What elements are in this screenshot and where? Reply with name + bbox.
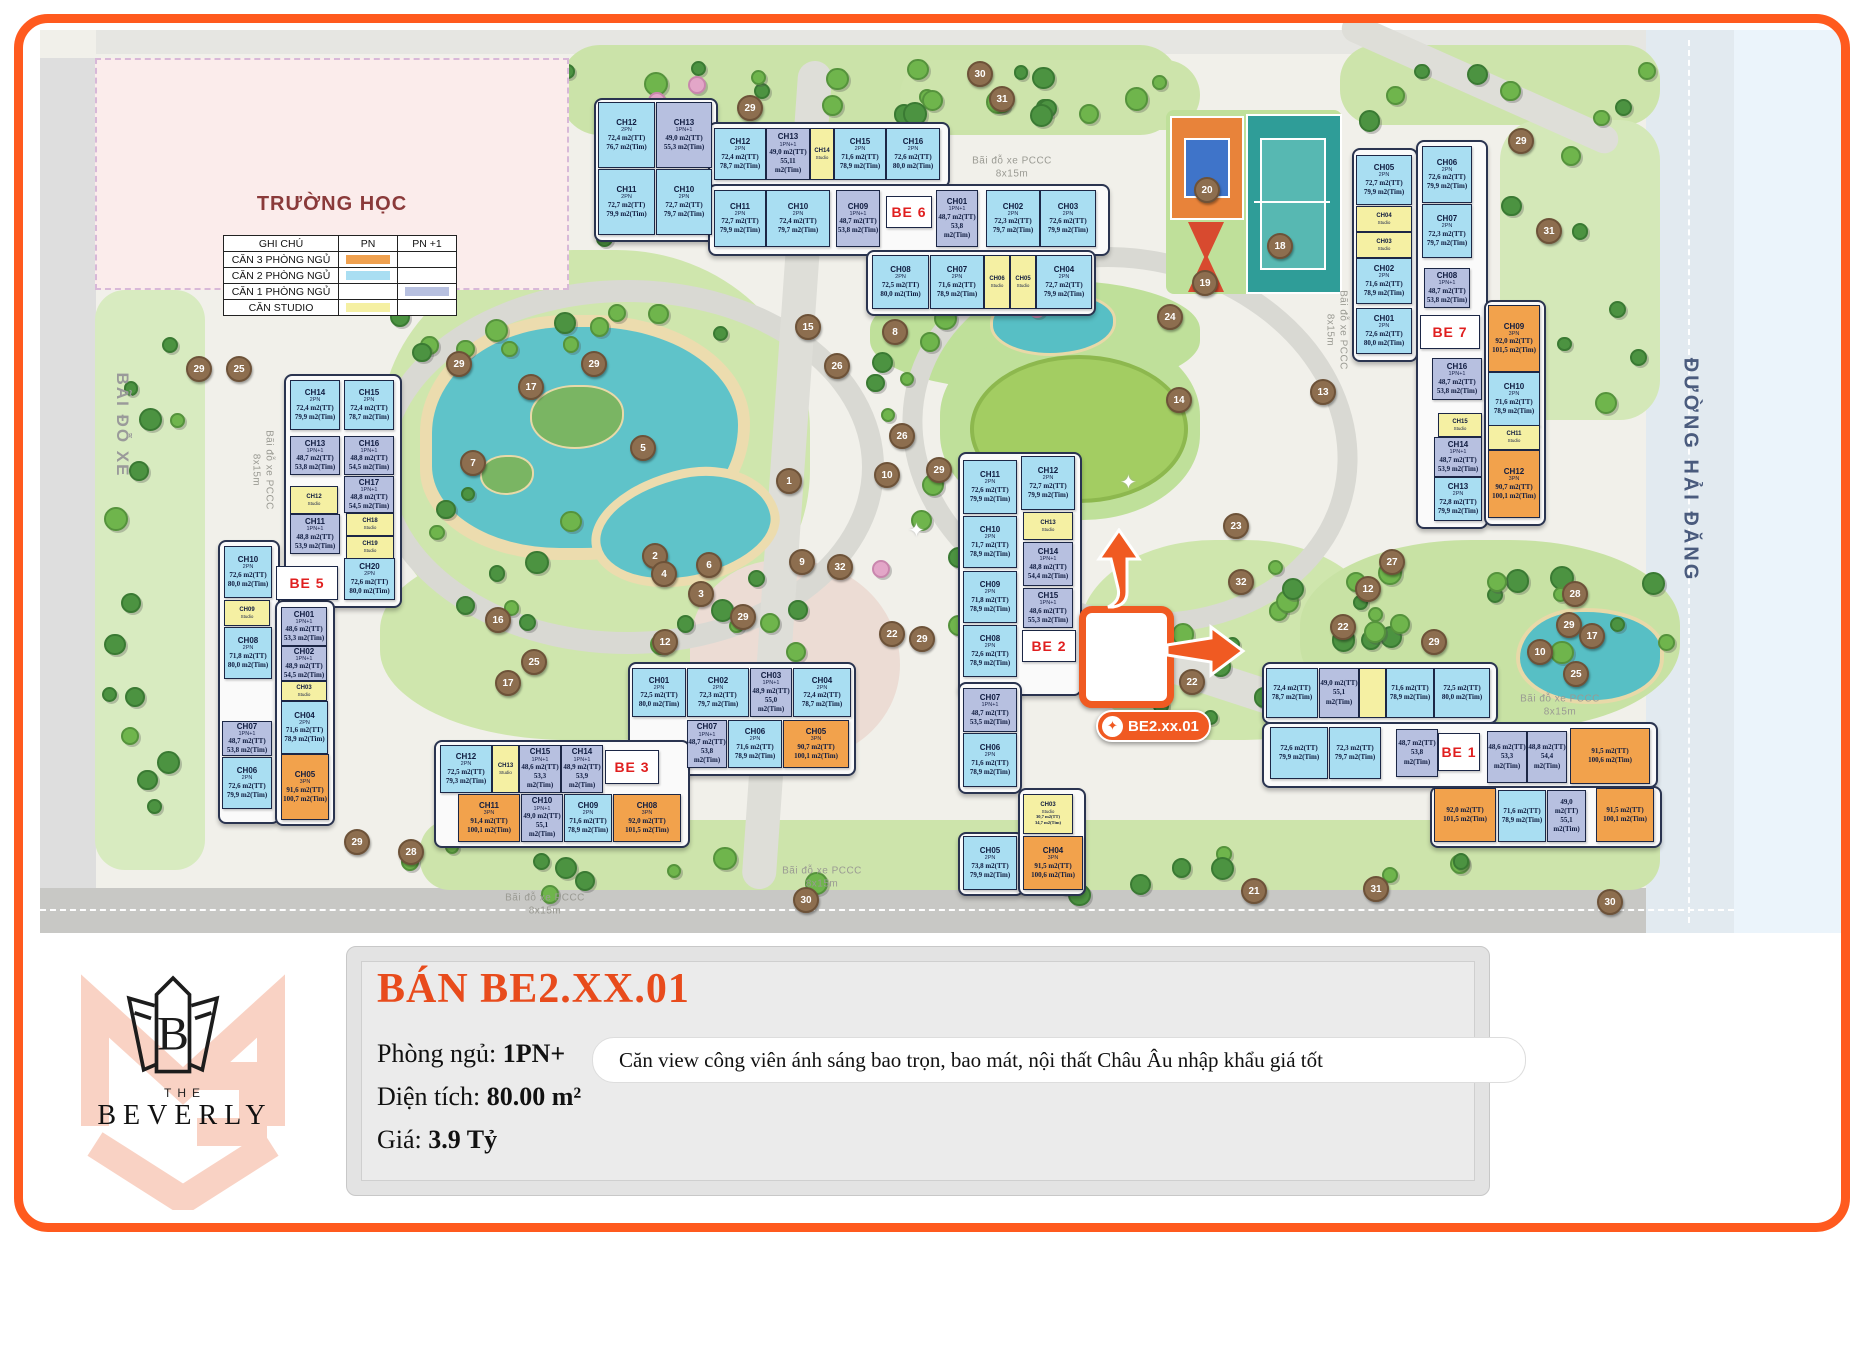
tree-icon — [429, 525, 445, 541]
tree-icon — [677, 615, 695, 633]
unit-cell[interactable]: CH042PN71,6 m2(TT)78,9 m2(Tim) — [281, 701, 328, 754]
unit-cell[interactable]: CH062PN72,6 m2(TT)79,9 m2(Tim) — [222, 757, 272, 809]
unit-cell[interactable]: CH031PN+148,9 m2(TT)55,0 m2(Tim) — [750, 668, 792, 717]
map-marker: 5 — [630, 435, 656, 461]
parking-label: Bãi đỗ xe PCCC 8x15m — [505, 893, 585, 918]
map-marker: 31 — [1536, 218, 1562, 244]
map-marker: 10 — [874, 462, 900, 488]
map-marker: 28 — [398, 839, 424, 865]
map-marker: 13 — [1310, 379, 1336, 405]
logo-letter: B — [157, 1009, 189, 1061]
unit-cell[interactable]: CH032PN72,6 m2(TT)79,9 m2(Tim) — [1040, 190, 1096, 247]
unit-cell[interactable]: CH092PN71,8 m2(TT)78,9 m2(Tim) — [963, 571, 1017, 623]
unit-cell[interactable]: CH18Studio — [346, 513, 394, 536]
unit-cell[interactable]: CH05Studio — [1010, 255, 1036, 309]
tree-icon — [1390, 614, 1409, 633]
tree-icon — [1386, 86, 1404, 104]
area-value: 80.00 m² — [487, 1082, 581, 1111]
unit-cell[interactable]: 49,0 m2(TT)55,1 m2(Tim) — [1547, 790, 1586, 842]
unit-cell[interactable]: 72,6 m2(TT)79,9 m2(Tim) — [1270, 727, 1328, 779]
brand-logo: B THE BEVERLY — [55, 948, 315, 1210]
tree-icon — [1414, 64, 1430, 80]
unit-cell[interactable]: CH082PN72,6 m2(TT)78,9 m2(Tim) — [963, 625, 1017, 677]
unit-cell[interactable]: CH053PN90,7 m2(TT)100,1 m2(Tim) — [783, 720, 849, 768]
unit-cell[interactable]: CH11Studio — [1488, 425, 1540, 450]
map-marker: 15 — [795, 314, 821, 340]
logo-crest-icon: B — [118, 974, 228, 1094]
unit-cell[interactable]: CH012PN72,6 m2(TT)80,0 m2(Tim) — [1356, 308, 1412, 354]
unit-cell[interactable]: CH141PN+148,9 m2(TT)53,9 m2(Tim) — [561, 745, 603, 793]
blossom-tree-icon — [688, 76, 706, 94]
tree-icon — [1368, 607, 1383, 622]
tree-icon — [748, 570, 765, 587]
arrow-up-icon — [1096, 528, 1142, 610]
court-net-line — [1254, 201, 1330, 203]
legend-row-label: CĂN 2 PHÒNG NGỦ — [224, 268, 339, 284]
map-marker: 32 — [827, 554, 853, 580]
unit-cell[interactable]: CH152PN72,4 m2(TT)78,7 m2(Tim) — [344, 380, 394, 430]
map-marker: 18 — [1267, 233, 1293, 259]
legend-header: GHI CHÚ — [224, 236, 339, 252]
unit-cell[interactable]: CH062PN72,6 m2(TT)79,9 m2(Tim) — [1422, 146, 1472, 203]
unit-cell[interactable]: CH122PN72,4 m2(TT)78,7 m2(Tim) — [714, 128, 766, 180]
tree-icon — [866, 374, 884, 392]
tree-icon — [920, 332, 940, 352]
tree-icon — [1030, 104, 1053, 127]
unit-cell[interactable]: CH141PN+148,8 m2(TT)54,4 m2(Tim) — [1023, 542, 1073, 586]
unit-cell[interactable]: CH022PN72,3 m2(TT)79,7 m2(Tim) — [986, 190, 1040, 247]
legend-swatch — [398, 300, 457, 316]
unit-cell[interactable]: CH113PN91,4 m2(TT)100,1 m2(Tim) — [458, 794, 520, 842]
map-marker: 1 — [776, 468, 802, 494]
tree-icon — [1550, 641, 1574, 665]
school-label: TRƯỜNG HỌC — [257, 193, 407, 216]
map-marker: 10 — [1527, 639, 1553, 665]
tree-icon — [881, 408, 895, 422]
unit-cell[interactable]: CH202PN72,6 m2(TT)80,0 m2(Tim) — [344, 558, 395, 600]
unit-cell[interactable]: CH162PN72,6 m2(TT)80,0 m2(Tim) — [886, 128, 940, 180]
unit-cell[interactable]: CH072PN72,3 m2(TT)79,7 m2(Tim) — [1422, 204, 1472, 258]
tree-icon — [1453, 853, 1470, 870]
map-marker: 20 — [1194, 177, 1220, 203]
legend-header: PN +1 — [398, 236, 457, 252]
tree-icon — [872, 352, 893, 373]
legend-swatch — [339, 252, 398, 268]
map-marker: 30 — [793, 887, 819, 913]
unit-cell[interactable]: 48,7 m2(TT)53,8 m2(Tim) — [1396, 729, 1438, 777]
tree-icon — [1487, 572, 1507, 592]
unit-cell[interactable]: CH042PN72,4 m2(TT)78,7 m2(Tim) — [793, 668, 851, 717]
map-marker: 29 — [737, 95, 763, 121]
tree-icon — [1572, 223, 1588, 239]
star-decoration: ✦ — [908, 518, 925, 543]
unit-cell[interactable]: CH022PN72,3 m2(TT)79,7 m2(Tim) — [687, 668, 749, 717]
map-marker: 28 — [1562, 581, 1588, 607]
unit-cell[interactable]: CH072PN71,6 m2(TT)78,9 m2(Tim) — [930, 255, 984, 309]
unit-cell[interactable]: CH053PN91,6 m2(TT)100,7 m2(Tim) — [281, 754, 329, 820]
legend-swatch — [398, 268, 457, 284]
unit-cell[interactable]: CH022PN71,6 m2(TT)78,9 m2(Tim) — [1356, 258, 1412, 304]
tree-icon — [563, 336, 579, 352]
info-panel: BÁN BE2.XX.01 Phòng ngủ: 1PN+ Diện tích:… — [346, 946, 1490, 1196]
building-label: BE 5 — [276, 566, 338, 600]
tree-icon — [170, 413, 185, 428]
unit-cell[interactable]: CH19Studio — [346, 536, 394, 559]
parking-label: Bãi đỗ xe PCCC 8x15m — [250, 430, 275, 510]
unit-cell[interactable]: CH132PN72,8 m2(TT)79,9 m2(Tim) — [1434, 477, 1482, 521]
listing-note: Căn view công viên ánh sáng bao trọn, ba… — [592, 1037, 1526, 1083]
price-field: Giá: 3.9 Tỷ — [377, 1125, 497, 1155]
map-marker: 24 — [1157, 304, 1183, 330]
legend-swatch — [339, 300, 398, 316]
unit-cell[interactable]: CH152PN71,6 m2(TT)78,9 m2(Tim) — [834, 128, 886, 180]
tree-icon — [1359, 110, 1381, 132]
tree-icon — [456, 596, 475, 615]
tree-icon — [485, 319, 508, 342]
tree-icon — [147, 799, 162, 814]
unit-cell[interactable]: CH091PN+148,7 m2(TT)53,8 m2(Tim) — [836, 190, 880, 247]
unit-cell[interactable]: CH09Studio — [224, 600, 270, 626]
map-marker: 7 — [460, 450, 486, 476]
building-label: BE 2 — [1022, 630, 1076, 662]
map-marker: 29 — [730, 604, 756, 630]
unit-cell[interactable]: CH071PN+148,7 m2(TT)53,8 m2(Tim) — [687, 720, 727, 768]
map-marker: 8 — [882, 319, 908, 345]
map-marker: 25 — [521, 649, 547, 675]
unit-cell[interactable]: CH12Studio — [290, 486, 338, 514]
map-marker: 17 — [518, 374, 544, 400]
parking-label: Bãi đỗ xe PCCC 8x15m — [1324, 290, 1349, 370]
unit-cell[interactable]: CH04Studio — [1356, 206, 1412, 232]
map-marker: 23 — [1223, 513, 1249, 539]
unit-cell[interactable]: CH142PN72,4 m2(TT)79,9 m2(Tim) — [290, 380, 340, 430]
unit-cell[interactable]: CH102PN72,7 m2(TT)79,7 m2(Tim) — [656, 169, 712, 235]
map-marker: 6 — [696, 552, 722, 578]
tree-icon — [1032, 67, 1055, 90]
tree-icon — [125, 687, 145, 707]
unit-cell[interactable]: CH093PN92,0 m2(TT)101,5 m2(Tim) — [1488, 305, 1540, 372]
tree-icon — [1610, 617, 1625, 632]
tree-icon — [1130, 874, 1151, 895]
tree-icon — [501, 341, 518, 358]
unit-cell[interactable]: CH052PN73,8 m2(TT)79,9 m2(Tim) — [963, 836, 1017, 890]
map-marker: 29 — [581, 351, 607, 377]
map-marker: 21 — [1241, 878, 1267, 904]
unit-cell[interactable]: CH03Studio30,7 m2(TT)34,7 m2(Tim) — [1023, 794, 1073, 834]
legend-row-label: CĂN 1 PHÒNG NGỦ — [224, 284, 339, 300]
legend-swatch — [339, 268, 398, 284]
unit-cell[interactable]: CH131PN+149,0 m2(TT)55,11 m2(Tim) — [766, 128, 810, 180]
map-marker: 29 — [909, 626, 935, 652]
unit-cell[interactable]: 49,0 m2(TT)55,1 m2(Tim) — [1319, 668, 1359, 718]
tree-icon — [137, 770, 158, 791]
unit-cell[interactable] — [1359, 668, 1386, 718]
unit-cell[interactable]: CH06Studio — [984, 255, 1010, 309]
map-marker: 29 — [344, 829, 370, 855]
tree-icon — [826, 68, 848, 90]
unit-cell[interactable]: CH112PN72,6 m2(TT)79,9 m2(Tim) — [963, 460, 1017, 514]
tree-icon — [560, 511, 581, 532]
unit-cell[interactable]: CH043PN91,5 m2(TT)100,6 m2(Tim) — [1023, 836, 1083, 890]
map-marker: 3 — [688, 581, 714, 607]
unit-cell[interactable]: 91,5 m2(TT)100,1 m2(Tim) — [1596, 788, 1654, 842]
parking-label: Bãi đỗ xe PCCC 8x15m — [972, 156, 1052, 181]
unit-cell[interactable]: CH082PN72,5 m2(TT)80,0 m2(Tim) — [872, 255, 929, 309]
map-marker: 16 — [485, 607, 511, 633]
unit-cell[interactable]: CH123PN90,7 m2(TT)100,1 m2(Tim) — [1488, 450, 1540, 518]
selected-unit-tag[interactable]: ✦ BE2.xx.01 — [1096, 710, 1211, 742]
unit-cell[interactable]: CH052PN72,7 m2(TT)79,9 m2(Tim) — [1356, 155, 1412, 205]
price-value: 3.9 Tỷ — [428, 1125, 497, 1154]
building-label: BE 1 — [1438, 733, 1480, 771]
unit-cell[interactable]: CH03Studio — [281, 681, 327, 701]
tree-icon — [121, 727, 139, 745]
tree-icon — [104, 634, 125, 655]
selected-unit-label: BE2.xx.01 — [1128, 718, 1199, 735]
unit-cell[interactable]: 91,5 m2(TT)100,6 m2(Tim) — [1570, 728, 1650, 784]
unit-cell[interactable]: CH131PN+149,0 m2(TT)55,3 m2(Tim) — [656, 102, 712, 168]
unit-cell[interactable]: CH062PN71,6 m2(TT)78,9 m2(Tim) — [728, 720, 782, 768]
tree-icon — [489, 565, 506, 582]
map-marker: 29 — [446, 351, 472, 377]
tree-icon — [157, 751, 180, 774]
building-label: BE 3 — [605, 750, 659, 784]
parking-label: Bãi đỗ xe PCCC 8x15m — [1520, 694, 1600, 719]
bedrooms-label: Phòng ngủ: — [377, 1039, 503, 1068]
tree-icon — [139, 408, 162, 431]
map-marker: 29 — [1421, 629, 1447, 655]
sport-courts — [1166, 110, 1342, 294]
tree-icon — [1172, 858, 1192, 878]
unit-cell[interactable]: CH092PN71,6 m2(TT)78,9 m2(Tim) — [564, 794, 612, 842]
tree-icon — [1500, 81, 1520, 101]
tree-icon — [1658, 634, 1675, 651]
map-marker: 19 — [1192, 270, 1218, 296]
unit-cell[interactable]: CH13Studio — [492, 745, 519, 793]
tree-icon — [713, 847, 736, 870]
unit-cell[interactable]: CH112PN72,7 m2(TT)79,9 m2(Tim) — [598, 169, 655, 235]
unit-cell[interactable]: CH151PN+148,6 m2(TT)53,3 m2(Tim) — [519, 745, 561, 793]
unit-cell[interactable]: CH081PN+148,7 m2(TT)53,8 m2(Tim) — [1424, 268, 1470, 308]
arrow-right-icon — [1164, 624, 1246, 678]
blossom-tree-icon — [872, 560, 890, 578]
street-far-side — [1734, 30, 1846, 933]
star-decoration: ✦ — [1120, 470, 1137, 495]
highlight-ring — [1079, 606, 1174, 708]
road-left — [40, 58, 96, 890]
legend-table: GHI CHÚPNPN +1CĂN 3 PHÒNG NGỦCĂN 2 PHÒNG… — [223, 235, 457, 316]
unit-cell[interactable]: 71,6 m2(TT)78,9 m2(Tim) — [1386, 668, 1434, 718]
unit-cell[interactable]: CH03Studio — [1356, 232, 1412, 258]
unit-cell[interactable]: CH131PN+148,7 m2(TT)53,8 m2(Tim) — [290, 436, 340, 475]
unit-cell[interactable]: CH111PN+148,8 m2(TT)53,9 m2(Tim) — [290, 514, 340, 554]
tree-icon — [525, 551, 548, 574]
map-marker: 14 — [1166, 387, 1192, 413]
area-label: Diện tích: — [377, 1082, 487, 1111]
map-marker: 32 — [1228, 569, 1254, 595]
map-marker: 27 — [1379, 549, 1405, 575]
unit-cell[interactable]: 72,5 m2(TT)80,0 m2(Tim) — [1434, 668, 1490, 718]
tennis-court — [1246, 114, 1342, 294]
bedrooms-value: 1PN+ — [503, 1039, 565, 1068]
bedrooms-field: Phòng ngủ: 1PN+ — [377, 1039, 565, 1069]
tree-icon — [1364, 621, 1386, 643]
tree-icon — [1642, 572, 1665, 595]
unit-cell[interactable]: 72,4 m2(TT)78,7 m2(Tim) — [1266, 668, 1318, 718]
unit-cell[interactable]: CH112PN72,7 m2(TT)79,9 m2(Tim) — [714, 190, 766, 247]
tree-icon — [555, 857, 577, 879]
unit-cell[interactable]: CH082PN71,8 m2(TT)80,0 m2(Tim) — [224, 627, 272, 679]
area-field: Diện tích: 80.00 m² — [377, 1082, 581, 1112]
legend-row-label: CĂN STUDIO — [224, 300, 339, 316]
map-marker: 31 — [989, 86, 1015, 112]
street-name-label: ĐƯỜNG HẢI ĐĂNG — [1679, 358, 1702, 583]
unit-cell[interactable]: CH071PN+148,7 m2(TT)53,5 m2(Tim) — [963, 688, 1017, 732]
unit-cell[interactable]: CH083PN92,0 m2(TT)101,5 m2(Tim) — [613, 794, 681, 842]
tree-icon — [129, 461, 149, 481]
map-marker: 4 — [651, 561, 677, 587]
unit-cell[interactable]: CH071PN+148,7 m2(TT)53,8 m2(Tim) — [222, 721, 272, 756]
map-marker: 17 — [495, 670, 521, 696]
legend-row-label: CĂN 3 PHÒNG NGỦ — [224, 252, 339, 268]
basketball-court — [1170, 116, 1244, 220]
map-marker: 26 — [889, 423, 915, 449]
tree-icon — [436, 500, 456, 520]
road-center-line — [40, 909, 1734, 911]
tree-icon — [907, 59, 929, 81]
unit-cell[interactable]: 92,0 m2(TT)101,5 m2(Tim) — [1434, 788, 1496, 842]
unit-cell[interactable]: 48,6 m2(TT)53,3 m2(Tim) — [1487, 731, 1527, 783]
unit-cell[interactable]: CH161PN+148,8 m2(TT)54,5 m2(Tim) — [344, 436, 394, 475]
tree-icon — [1014, 65, 1028, 79]
map-marker: 25 — [1563, 661, 1589, 687]
legend-swatch — [339, 284, 398, 300]
tree-icon — [1638, 62, 1656, 80]
unit-cell[interactable]: CH161PN+148,7 m2(TT)53,8 m2(Tim) — [1432, 358, 1482, 400]
tree-icon — [788, 600, 808, 620]
map-marker: 22 — [1330, 614, 1356, 640]
map-marker: 9 — [789, 549, 815, 575]
unit-cell[interactable]: CH011PN+148,6 m2(TT)53,3 m2(Tim) — [281, 607, 327, 646]
logo-the-text: THE — [55, 1086, 315, 1100]
tree-icon — [822, 95, 843, 116]
unit-cell[interactable]: CH141PN+148,7 m2(TT)53,9 m2(Tim) — [1434, 437, 1482, 477]
unit-cell[interactable]: CH15Studio — [1438, 413, 1482, 437]
tree-icon — [1125, 87, 1148, 110]
map-marker: 22 — [879, 621, 905, 647]
unit-cell[interactable]: CH102PN72,6 m2(TT)80,0 m2(Tim) — [224, 546, 272, 598]
map-marker: 26 — [824, 353, 850, 379]
tree-icon — [648, 304, 668, 324]
unit-cell[interactable]: CH122PN72,4 m2(TT)76,7 m2(Tim) — [598, 102, 655, 168]
parking-label: Bãi đỗ xe PCCC 8x15m — [782, 866, 862, 891]
unit-cell[interactable]: CH122PN72,7 m2(TT)79,9 m2(Tim) — [1021, 456, 1075, 510]
legend-swatch — [398, 252, 457, 268]
tree-icon — [1557, 337, 1571, 351]
tree-icon — [1506, 569, 1529, 592]
tree-icon — [121, 593, 141, 613]
unit-cell[interactable]: 71,6 m2(TT)78,9 m2(Tim) — [1498, 790, 1546, 842]
tree-icon — [1152, 75, 1167, 90]
map-marker: 25 — [226, 356, 252, 382]
tree-icon — [1593, 110, 1610, 127]
unit-cell[interactable]: 48,8 m2(TT)54,4 m2(Tim) — [1527, 731, 1567, 783]
map-marker: 12 — [1355, 576, 1381, 602]
unit-cell[interactable]: CH13Studio — [1023, 512, 1073, 540]
unit-cell[interactable]: CH012PN72,5 m2(TT)80,0 m2(Tim) — [632, 668, 686, 717]
unit-cell[interactable]: CH062PN71,6 m2(TT)78,9 m2(Tim) — [963, 733, 1017, 787]
building-label: BE 6 — [886, 196, 932, 228]
map-marker: 12 — [652, 629, 678, 655]
tree-icon — [900, 372, 915, 387]
listing-title: BÁN BE2.XX.01 — [377, 965, 690, 1013]
legend-header: PN — [339, 236, 398, 252]
unit-cell[interactable]: CH101PN+149,0 m2(TT)55,1 m2(Tim) — [521, 794, 563, 842]
unit-cell[interactable]: CH011PN+148,7 m2(TT)53,8 m2(Tim) — [936, 190, 978, 247]
unit-cell[interactable]: CH102PN71,7 m2(TT)78,9 m2(Tim) — [963, 516, 1017, 568]
unit-cell[interactable]: CH102PN72,4 m2(TT)79,7 m2(Tim) — [766, 190, 830, 247]
parking-side-label: BÃI ĐỖ XE — [112, 373, 132, 478]
map-marker: 31 — [1363, 876, 1389, 902]
page: TRƯỜNG HỌC GHI CHÚPNPN +1CĂN 3 PHÒNG NGỦ… — [0, 0, 1864, 1366]
map-marker: 30 — [967, 61, 993, 87]
legend-swatch — [398, 284, 457, 300]
unit-cell[interactable]: CH102PN71,6 m2(TT)78,9 m2(Tim) — [1488, 372, 1540, 426]
price-label: Giá: — [377, 1125, 428, 1154]
map-marker: 29 — [1508, 128, 1534, 154]
unit-cell[interactable]: CH021PN+148,9 m2(TT)54,5 m2(Tim) — [281, 646, 327, 681]
unit-cell[interactable]: 72,3 m2(TT)79,7 m2(Tim) — [1329, 727, 1381, 779]
unit-cell[interactable]: CH042PN72,7 m2(TT)79,9 m2(Tim) — [1036, 255, 1092, 309]
map-marker: 30 — [1597, 889, 1623, 915]
map-marker: 29 — [926, 457, 952, 483]
unit-cell[interactable]: CH151PN+148,6 m2(TT)55,3 m2(Tim) — [1023, 588, 1073, 628]
tree-icon — [575, 871, 595, 891]
map-marker: 29 — [186, 356, 212, 382]
brand-mini-icon: ✦ — [1102, 716, 1123, 737]
tree-icon — [554, 312, 576, 334]
building-label: BE 7 — [1420, 315, 1480, 349]
unit-cell[interactable]: CH14Studio — [810, 128, 834, 180]
unit-cell[interactable]: CH171PN+148,8 m2(TT)54,5 m2(Tim) — [344, 476, 394, 513]
logo-brand-text: BEVERLY — [55, 1100, 315, 1132]
map-marker: 17 — [1579, 623, 1605, 649]
unit-cell[interactable]: CH122PN72,5 m2(TT)79,3 m2(Tim) — [440, 745, 492, 793]
